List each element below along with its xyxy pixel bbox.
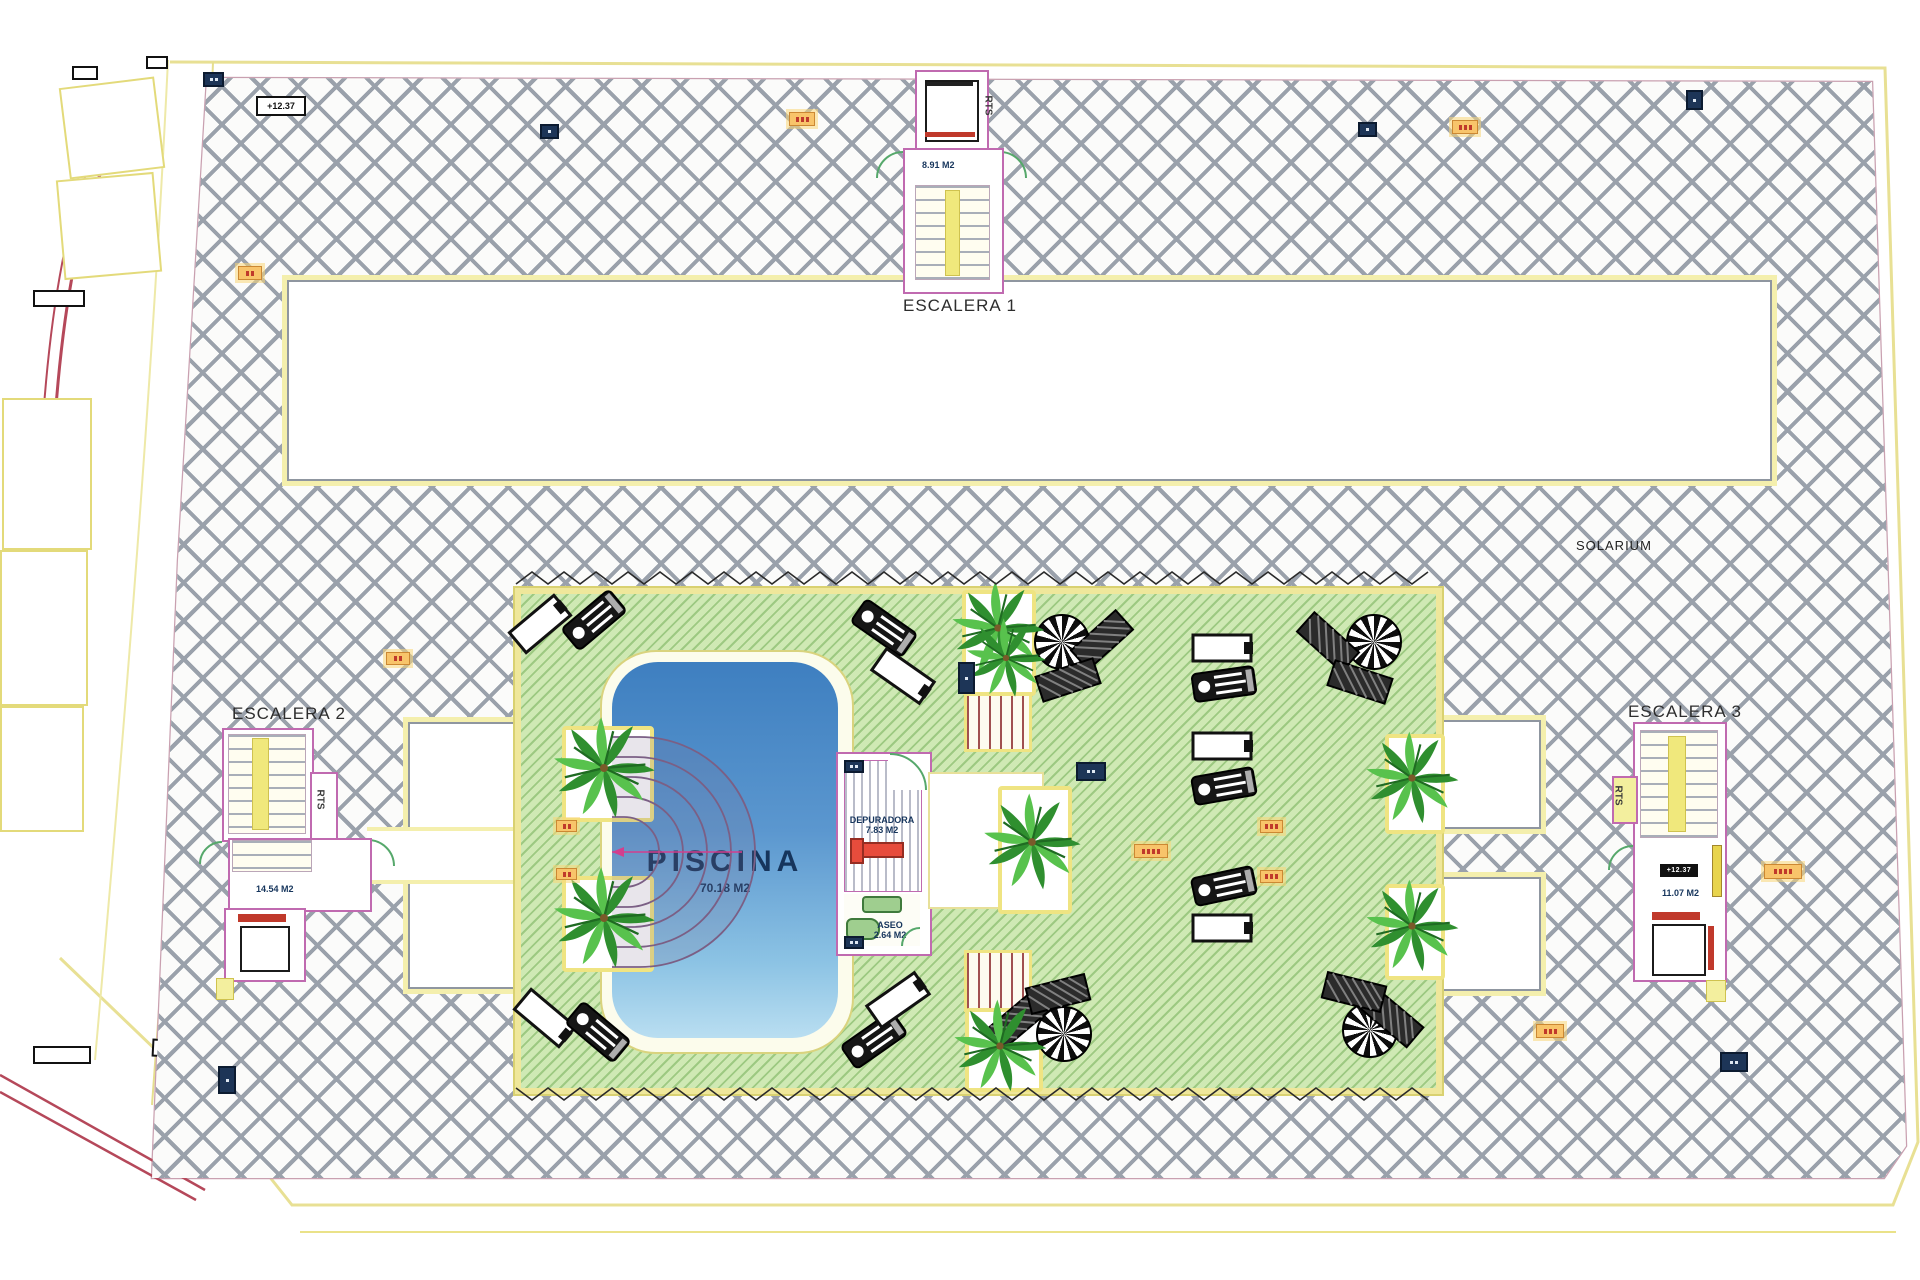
escalera3-lift-door xyxy=(1652,912,1700,920)
electrical-marker xyxy=(540,124,559,139)
escalera1-rts-label: RTS xyxy=(983,96,994,116)
escalera3-lift-car xyxy=(1652,924,1706,976)
solarium-label: SOLARIUM xyxy=(1576,538,1652,553)
services-marker xyxy=(1260,820,1283,833)
level-marker-chip: +12.37 xyxy=(256,96,306,116)
electrical-marker xyxy=(203,72,224,87)
electrical-marker xyxy=(1686,90,1703,110)
services-marker xyxy=(1452,120,1478,134)
escalera3-lift-rail xyxy=(1708,926,1714,970)
escalera2-lift-car xyxy=(240,926,290,972)
services-marker xyxy=(1764,864,1802,879)
escalera3-rts-label: RTS xyxy=(1613,786,1624,806)
escalera1-stair-spine xyxy=(945,190,960,276)
electrical-marker xyxy=(218,1066,236,1094)
electrical-marker xyxy=(1076,762,1106,781)
floor-plan-canvas: PISCINA 70.18 M2 DEPURADORA 7.83 M2 ASEO… xyxy=(0,0,1920,1280)
services-marker xyxy=(238,266,262,280)
electrical-marker xyxy=(1720,1052,1748,1072)
escalera2-area: 14.54 M2 xyxy=(256,884,294,894)
services-marker xyxy=(386,652,410,665)
escalera1-lift-door xyxy=(925,132,975,137)
deck-zigzag-joint xyxy=(516,572,1428,584)
escalera3-duct xyxy=(1706,980,1726,1002)
escalera3-level-chip: +12.37 xyxy=(1660,864,1698,877)
escalera1-lift-rail xyxy=(927,82,973,86)
electrical-marker xyxy=(1358,122,1377,137)
services-marker xyxy=(1134,844,1168,858)
escalera3-stair-spine xyxy=(1668,736,1686,832)
services-marker xyxy=(789,112,815,126)
escalera1-area: 8.91 M2 xyxy=(922,160,955,170)
escalera2-stair-spine xyxy=(252,738,269,830)
deck-zigzag-joint xyxy=(516,1088,1428,1100)
escalera2-title: ESCALERA 2 xyxy=(232,704,352,724)
services-marker xyxy=(1260,870,1283,883)
services-marker xyxy=(556,868,577,880)
electrical-marker xyxy=(958,662,975,694)
services-marker xyxy=(556,820,577,832)
escalera3-title: ESCALERA 3 xyxy=(1628,702,1748,722)
escalera3-area: 11.07 M2 xyxy=(1662,888,1699,898)
services-marker xyxy=(1536,1024,1564,1038)
escalera3-duct-strip xyxy=(1712,845,1722,897)
escalera2-duct xyxy=(216,978,234,1000)
escalera2-landing-treads xyxy=(232,840,312,872)
escalera2-lift-door xyxy=(238,914,286,922)
escalera2-rts-label: RTS xyxy=(315,790,326,810)
escalera1-title: ESCALERA 1 xyxy=(903,296,1003,316)
